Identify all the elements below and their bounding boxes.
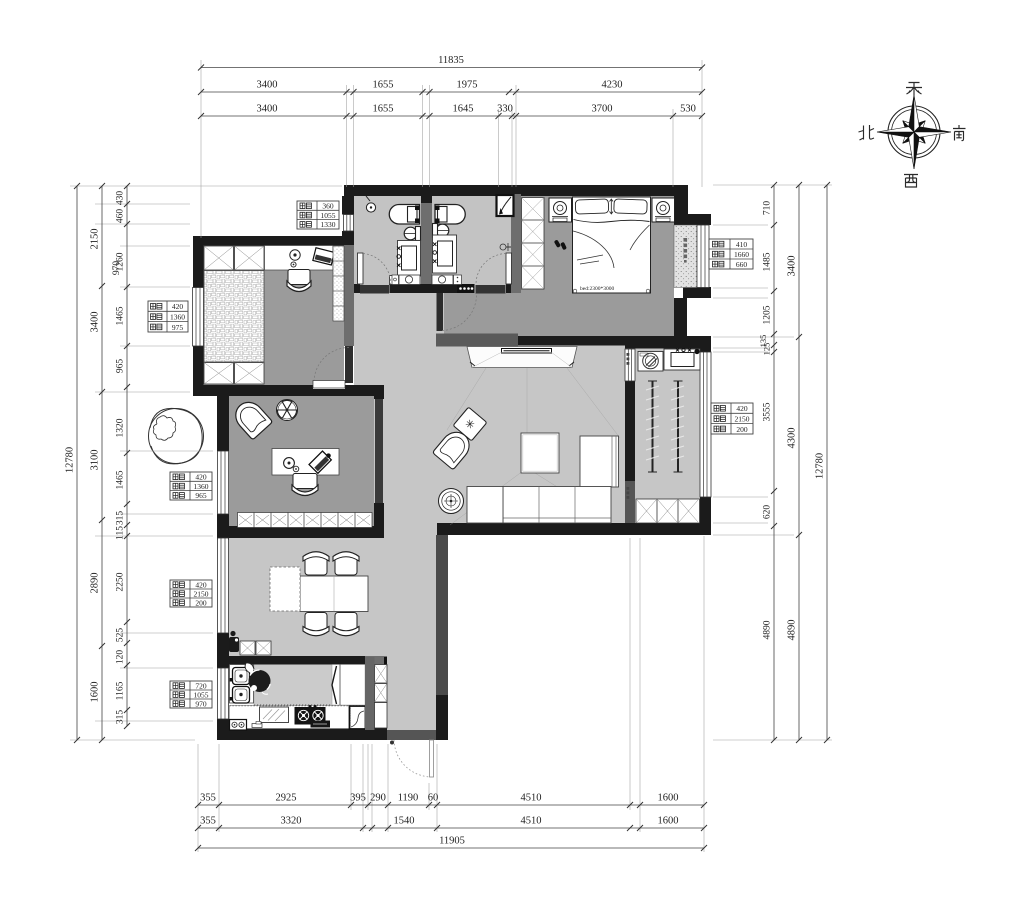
svg-text:525: 525	[116, 628, 126, 643]
svg-text:660: 660	[736, 260, 748, 269]
svg-text:460: 460	[116, 209, 126, 224]
svg-text:970: 970	[195, 699, 207, 708]
svg-text:975: 975	[172, 323, 184, 332]
svg-text:710: 710	[763, 201, 773, 216]
svg-text:420: 420	[172, 302, 184, 311]
svg-text:3400: 3400	[90, 312, 101, 333]
svg-text:1645: 1645	[453, 104, 474, 115]
svg-text:1600: 1600	[90, 682, 101, 703]
svg-text:115: 115	[116, 526, 126, 540]
svg-text:4510: 4510	[521, 816, 542, 827]
svg-text:1320: 1320	[116, 418, 126, 437]
svg-text:3400: 3400	[257, 80, 278, 91]
svg-text:420: 420	[736, 404, 748, 413]
svg-text:200: 200	[195, 598, 207, 607]
svg-text:290: 290	[370, 793, 386, 804]
svg-text:1055: 1055	[194, 690, 209, 699]
svg-text:395: 395	[350, 793, 366, 804]
svg-text:1975: 1975	[457, 80, 478, 91]
svg-text:420: 420	[195, 473, 207, 482]
svg-text:1055: 1055	[321, 211, 336, 220]
svg-text:1330: 1330	[321, 220, 336, 229]
svg-text:620: 620	[763, 505, 773, 520]
svg-text:4890: 4890	[763, 620, 773, 639]
svg-text:2150: 2150	[194, 589, 209, 598]
svg-text:12780: 12780	[65, 447, 76, 473]
svg-text:2890: 2890	[90, 573, 101, 594]
svg-text:1465: 1465	[116, 470, 126, 489]
svg-text:3700: 3700	[592, 104, 613, 115]
svg-text:200: 200	[736, 425, 748, 434]
svg-text:3400: 3400	[787, 256, 798, 277]
svg-text:2150: 2150	[90, 229, 101, 250]
svg-text:1655: 1655	[373, 80, 394, 91]
svg-text:965: 965	[195, 491, 207, 500]
svg-text:1655: 1655	[373, 104, 394, 115]
svg-text:4510: 4510	[521, 793, 542, 804]
svg-text:355: 355	[200, 793, 216, 804]
svg-text:315: 315	[116, 511, 126, 526]
svg-text:4300: 4300	[787, 428, 798, 449]
svg-text:1360: 1360	[170, 313, 185, 322]
svg-text:2925: 2925	[276, 793, 297, 804]
svg-text:360: 360	[322, 202, 334, 211]
svg-text:3400: 3400	[257, 104, 278, 115]
svg-text:720: 720	[195, 681, 207, 690]
svg-text:2150: 2150	[735, 415, 750, 424]
svg-text:bed:2300*3000: bed:2300*3000	[580, 286, 614, 292]
svg-text:11905: 11905	[439, 836, 465, 847]
svg-text:12780: 12780	[815, 453, 826, 479]
svg-text:11835: 11835	[438, 55, 464, 66]
svg-text:1360: 1360	[194, 482, 209, 491]
svg-text:125: 125	[762, 343, 772, 356]
svg-text:1540: 1540	[394, 816, 415, 827]
svg-text:3320: 3320	[281, 816, 302, 827]
svg-text:410: 410	[736, 240, 748, 249]
svg-text:120: 120	[116, 650, 126, 665]
svg-text:2250: 2250	[116, 572, 126, 591]
svg-text:1600: 1600	[658, 816, 679, 827]
svg-text:4230: 4230	[602, 80, 623, 91]
svg-text:1205: 1205	[763, 305, 773, 324]
svg-text:1165: 1165	[116, 681, 126, 700]
svg-text:970: 970	[112, 261, 122, 276]
svg-text:3100: 3100	[90, 450, 101, 471]
svg-text:1660: 1660	[734, 250, 749, 259]
svg-text:330: 330	[497, 104, 513, 115]
svg-text:965: 965	[116, 359, 126, 374]
svg-text:430: 430	[116, 191, 126, 206]
svg-text:1600: 1600	[658, 793, 679, 804]
svg-text:3555: 3555	[763, 402, 773, 421]
svg-text:1465: 1465	[116, 306, 126, 325]
svg-text:4890: 4890	[787, 620, 798, 641]
svg-text:315: 315	[116, 710, 126, 725]
svg-text:1485: 1485	[763, 252, 773, 271]
svg-text:60: 60	[428, 793, 439, 804]
svg-text:420: 420	[195, 580, 207, 589]
svg-text:1190: 1190	[398, 793, 419, 804]
svg-text:530: 530	[680, 104, 696, 115]
svg-text:355: 355	[200, 816, 216, 827]
